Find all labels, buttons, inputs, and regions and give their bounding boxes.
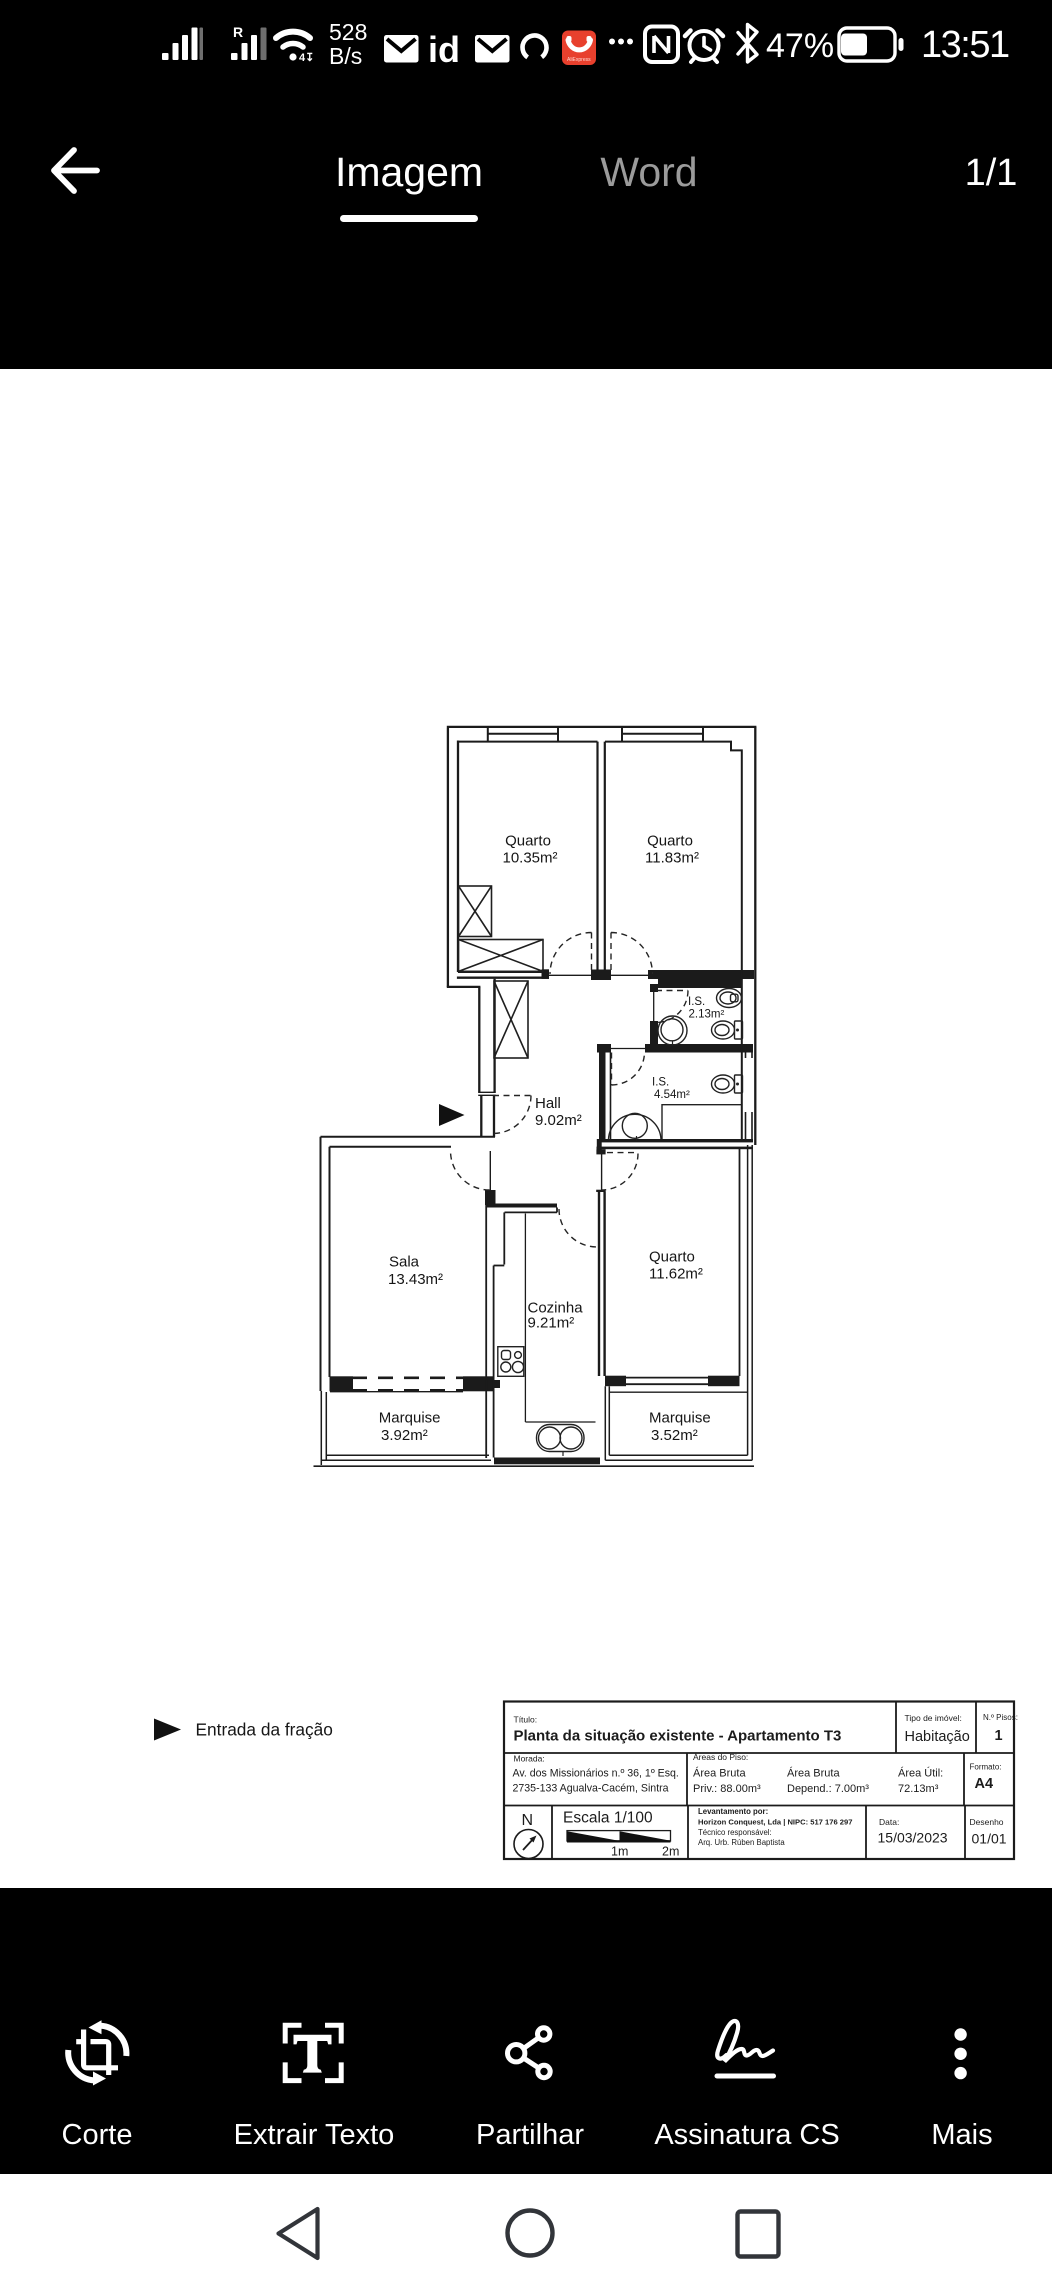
svg-text:I.S.: I.S. — [688, 996, 705, 1008]
svg-text:Morada:: Morada: — [514, 1754, 545, 1764]
svg-text:Planta da situação existente -: Planta da situação existente - Apartamen… — [514, 1728, 842, 1745]
svg-text:Quarto: Quarto — [649, 1249, 695, 1266]
svg-text:AliExpress: AliExpress — [567, 57, 591, 63]
svg-text:Priv.: 88.00m³: Priv.: 88.00m³ — [693, 1783, 761, 1795]
svg-text:Habitação: Habitação — [905, 1729, 970, 1745]
svg-text:2m: 2m — [662, 1845, 679, 1859]
svg-text:Assinatura CS: Assinatura CS — [654, 2119, 839, 2151]
svg-text:Área Bruta: Área Bruta — [693, 1767, 746, 1780]
svg-text:Área Bruta: Área Bruta — [787, 1767, 840, 1780]
svg-text:11.62m²: 11.62m² — [649, 1266, 703, 1283]
svg-text:01/01: 01/01 — [972, 1831, 1007, 1847]
svg-text:I.S.: I.S. — [652, 1077, 669, 1089]
svg-text:2735-133 Agualva-Cacém, Sintra: 2735-133 Agualva-Cacém, Sintra — [513, 1783, 669, 1795]
svg-text:B/s: B/s — [329, 43, 362, 69]
svg-text:R: R — [233, 24, 243, 40]
svg-text:A4: A4 — [975, 1776, 994, 1792]
svg-text:10.35m²: 10.35m² — [502, 850, 557, 867]
svg-text:9.21m²: 9.21m² — [528, 1315, 575, 1332]
svg-text:Quarto: Quarto — [647, 833, 693, 850]
svg-text:Data:: Data: — [879, 1817, 899, 1827]
svg-text:9.02m²: 9.02m² — [535, 1112, 582, 1129]
svg-text:528: 528 — [329, 19, 367, 45]
svg-text:N.º Pisos:: N.º Pisos: — [983, 1713, 1018, 1722]
svg-text:3.92m²: 3.92m² — [381, 1427, 428, 1444]
svg-text:13:51: 13:51 — [921, 24, 1009, 66]
svg-text:47%: 47% — [766, 27, 834, 65]
svg-text:11.83m²: 11.83m² — [645, 850, 699, 867]
svg-text:Word: Word — [600, 149, 697, 195]
svg-text:Entrada da fração: Entrada da fração — [196, 1720, 333, 1740]
svg-text:4↧: 4↧ — [299, 52, 314, 64]
svg-text:Marquise: Marquise — [379, 1410, 441, 1427]
svg-text:Horizon Conquest, Lda | NIPC:: Horizon Conquest, Lda | NIPC: 517 176 29… — [698, 1818, 852, 1827]
svg-text:Extrair Texto: Extrair Texto — [234, 2119, 395, 2151]
svg-text:Hall: Hall — [535, 1095, 561, 1112]
svg-text:Marquise: Marquise — [649, 1410, 711, 1427]
svg-text:Desenho: Desenho — [970, 1817, 1004, 1827]
svg-text:15/03/2023: 15/03/2023 — [878, 1830, 948, 1846]
svg-text:Áreas do Piso:: Áreas do Piso: — [693, 1752, 748, 1762]
svg-text:Quarto: Quarto — [505, 833, 551, 850]
svg-text:id: id — [428, 29, 460, 70]
svg-text:4.54m²: 4.54m² — [654, 1089, 690, 1101]
svg-text:13.43m²: 13.43m² — [388, 1271, 443, 1288]
svg-text:Imagem: Imagem — [335, 149, 483, 195]
svg-text:Depend.: 7.00m³: Depend.: 7.00m³ — [787, 1783, 869, 1795]
svg-text:Técnico responsável:: Técnico responsável: — [698, 1828, 772, 1837]
svg-text:Formato:: Formato: — [970, 1763, 1002, 1772]
svg-text:Sala: Sala — [389, 1254, 420, 1271]
svg-text:3.52m²: 3.52m² — [651, 1427, 698, 1444]
svg-text:1/1: 1/1 — [965, 152, 1018, 194]
svg-text:Mais: Mais — [931, 2119, 992, 2151]
svg-text:72.13m³: 72.13m³ — [898, 1783, 939, 1795]
svg-text:Tipo de imóvel:: Tipo de imóvel: — [905, 1713, 962, 1723]
svg-text:Área Útil:: Área Útil: — [898, 1767, 943, 1780]
svg-text:Levantamento por:: Levantamento por: — [698, 1807, 768, 1816]
svg-text:1m: 1m — [611, 1845, 628, 1859]
svg-text:Partilhar: Partilhar — [476, 2119, 584, 2151]
svg-text:Escala 1/100: Escala 1/100 — [563, 1810, 653, 1827]
svg-text:Título:: Título: — [514, 1715, 538, 1725]
svg-text:2.13m²: 2.13m² — [689, 1009, 725, 1021]
svg-text:Av. dos Missionários n.º 36, 1: Av. dos Missionários n.º 36, 1º Esq. — [513, 1768, 679, 1780]
svg-text:N: N — [522, 1812, 534, 1829]
svg-text:1: 1 — [995, 1728, 1003, 1744]
svg-text:Corte: Corte — [62, 2119, 133, 2151]
svg-text:Arq. Urb. Rúben Baptista: Arq. Urb. Rúben Baptista — [698, 1838, 785, 1847]
